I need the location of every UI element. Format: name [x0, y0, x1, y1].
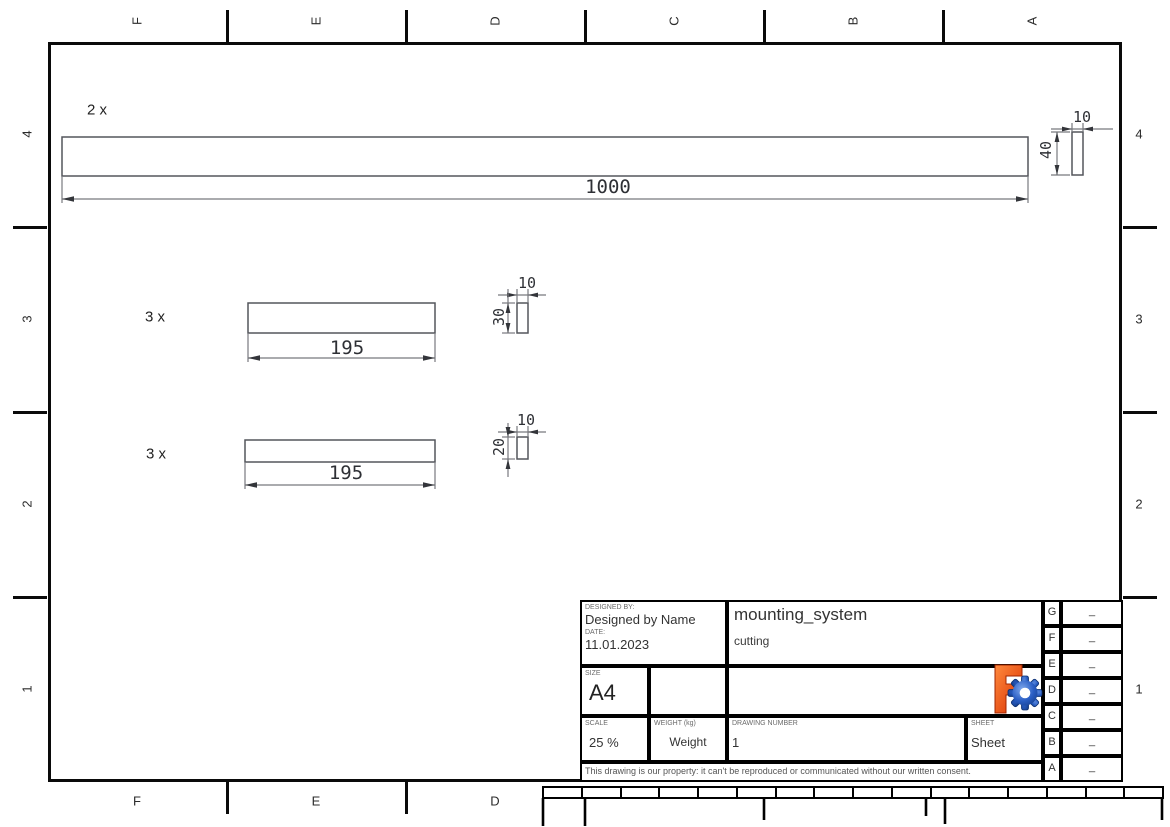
revision-letter: G: [1045, 602, 1059, 623]
drawing-title: mounting_system: [729, 602, 1041, 625]
weight-value: Weight: [651, 735, 725, 749]
part2-width-dim: 10: [518, 274, 536, 292]
part3-width-dim: 10: [517, 411, 535, 429]
revision-letter-cell: A: [1043, 756, 1061, 782]
part2-qty-label: 3 x: [145, 309, 165, 326]
part3-length-dim: 195: [329, 462, 363, 484]
revision-letter-cell: F: [1043, 626, 1061, 652]
sheet-value: Sheet: [968, 735, 1041, 750]
drawing-number-label: DRAWING NUMBER: [729, 718, 964, 728]
revision-value: _: [1063, 758, 1121, 777]
revision-value: _: [1063, 628, 1121, 647]
scale-label: SCALE: [582, 718, 647, 728]
sheet-cell: SHEET Sheet: [966, 716, 1043, 762]
revision-letter: A: [1045, 758, 1059, 779]
revision-letter-cell: B: [1043, 730, 1061, 756]
revision-value: _: [1063, 732, 1121, 751]
part1-height-dim: 40: [1037, 141, 1055, 159]
size-cell: SIZE A4: [580, 666, 649, 716]
revision-value: _: [1063, 654, 1121, 673]
scale-value: 25 %: [582, 735, 647, 750]
part1-width-dim: 10: [1073, 108, 1091, 126]
scale-cell: SCALE 25 %: [580, 716, 649, 762]
revision-letter: F: [1045, 628, 1059, 649]
revision-value-cell: _: [1061, 626, 1123, 652]
drawing-subtitle: cutting: [729, 625, 1041, 648]
designed-by-value: Designed by Name: [582, 612, 725, 627]
revision-value: _: [1063, 706, 1121, 725]
drawing-number-value: 1: [729, 735, 964, 750]
designed-by-label: DESIGNED BY:: [582, 602, 725, 612]
revision-value: _: [1063, 680, 1121, 699]
date-value: 11.01.2023: [582, 637, 725, 652]
part2-length-dim: 195: [330, 337, 364, 359]
title-cell: mounting_system cutting: [727, 600, 1043, 666]
part3-qty-label: 3 x: [146, 446, 166, 463]
revision-value-cell: _: [1061, 756, 1123, 782]
freecad-logo-icon: [988, 663, 1048, 717]
size-value: A4: [582, 678, 647, 706]
revision-value-cell: _: [1061, 730, 1123, 756]
revision-value-cell: _: [1061, 678, 1123, 704]
revision-letter: B: [1045, 732, 1059, 753]
empty-cell: [649, 666, 727, 716]
disclaimer-cell: This drawing is our property: it can't b…: [580, 762, 1043, 782]
designed-by-cell: DESIGNED BY: Designed by Name DATE: 11.0…: [580, 600, 727, 666]
part2-height-dim: 30: [490, 308, 508, 326]
part1-qty-label: 2 x: [87, 102, 107, 119]
weight-label: WEIGHT (kg): [651, 718, 725, 728]
size-label: SIZE: [582, 668, 647, 678]
part1-length-dim: 1000: [585, 176, 631, 198]
revision-letter-cell: G: [1043, 600, 1061, 626]
revision-value-cell: _: [1061, 704, 1123, 730]
part3-height-dim: 20: [490, 438, 508, 456]
disclaimer-text: This drawing is our property: it can't b…: [582, 764, 1041, 777]
revision-value-cell: _: [1061, 652, 1123, 678]
sheet-label: SHEET: [968, 718, 1041, 728]
technical-drawing-sheet: { "grid": { "top_letters": ["F","E","D",…: [0, 0, 1170, 827]
revision-value: _: [1063, 602, 1121, 621]
drawing-number-cell: DRAWING NUMBER 1: [727, 716, 966, 762]
date-label: DATE:: [582, 627, 725, 637]
weight-cell: WEIGHT (kg) Weight: [649, 716, 727, 762]
revision-value-cell: _: [1061, 600, 1123, 626]
